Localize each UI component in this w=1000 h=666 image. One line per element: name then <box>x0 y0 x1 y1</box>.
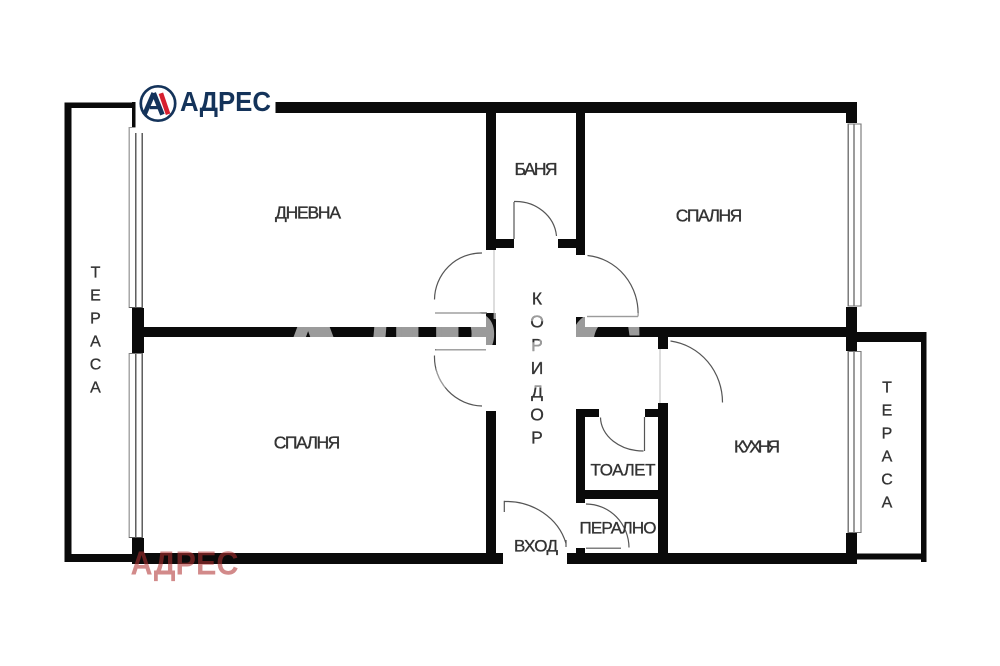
svg-text:Т: Т <box>91 265 101 282</box>
svg-text:ВХОД: ВХОД <box>514 537 558 556</box>
svg-text:А: А <box>90 380 101 397</box>
svg-text:ПЕРАЛНО: ПЕРАЛНО <box>580 519 657 538</box>
svg-text:СПАЛНЯ: СПАЛНЯ <box>274 433 341 453</box>
svg-text:С: С <box>90 357 102 374</box>
svg-text:КУХНЯ: КУХНЯ <box>734 437 780 457</box>
svg-text:А: А <box>882 495 893 512</box>
svg-text:С: С <box>881 472 893 489</box>
svg-text:АДРЕС: АДРЕС <box>131 545 239 582</box>
svg-text:Е: Е <box>882 403 893 420</box>
svg-text:Р: Р <box>90 311 101 328</box>
svg-text:БАНЯ: БАНЯ <box>515 159 558 179</box>
svg-text:СПАЛНЯ: СПАЛНЯ <box>676 206 743 226</box>
svg-text:Т: Т <box>882 380 892 397</box>
svg-text:Е: Е <box>90 288 101 305</box>
svg-text:ДНЕВНА: ДНЕВНА <box>275 203 341 223</box>
svg-text:А: А <box>882 449 893 466</box>
svg-text:Р: Р <box>531 428 543 448</box>
svg-text:ТОАЛЕТ: ТОАЛЕТ <box>591 461 656 480</box>
svg-text:Р: Р <box>882 426 893 443</box>
svg-text:А: А <box>90 334 101 351</box>
svg-text:АДРЕС: АДРЕС <box>274 287 646 409</box>
svg-text:АДРЕС: АДРЕС <box>180 86 271 117</box>
